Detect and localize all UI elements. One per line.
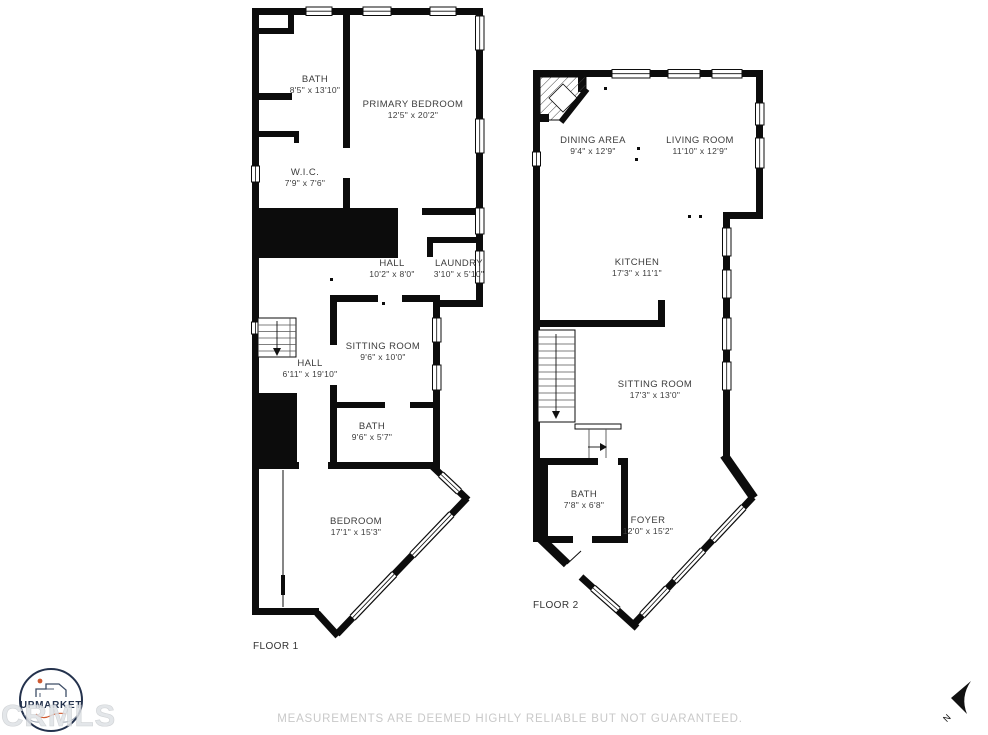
room-label-living-room: LIVING ROOM [666, 135, 734, 146]
floor2-stairs [538, 330, 621, 458]
room-dims-bath-f2: 7'8" x 6'8" [564, 500, 604, 510]
room-label-kitchen: KITCHEN [615, 257, 660, 268]
room-label-bedroom: BEDROOM [330, 516, 382, 527]
room-dims-bath-lower: 9'6" x 5'7" [352, 432, 392, 442]
floorplan-canvas: BATH 8'5" x 13'10" PRIMARY BEDROOM 12'5"… [0, 0, 988, 735]
room-dims-hall-lower: 6'11" x 19'10" [283, 369, 338, 379]
floor2-title: FLOOR 2 [533, 600, 579, 611]
room-label-bath-lower: BATH [359, 421, 385, 432]
foyer-left-diagonal-window [593, 588, 618, 610]
room-label-hall-lower: HALL [297, 358, 322, 369]
room-label-bath-upper: BATH [302, 74, 328, 85]
room-dims-living-room: 11'10" x 12'9" [673, 146, 728, 156]
room-label-dining-area: DINING AREA [560, 135, 626, 146]
logo-heart-icon [38, 679, 43, 684]
room-dims-bedroom: 17'1" x 15'3" [331, 527, 382, 537]
room-label-hall-upper: HALL [379, 258, 404, 269]
room-dims-foyer: 12'0" x 15'2" [623, 526, 674, 536]
room-dims-wic: 7'9" x 7'6" [285, 178, 325, 188]
room-dims-sitting-room-f2: 17'3" x 13'0" [630, 390, 681, 400]
room-dims-bath-upper: 8'5" x 13'10" [290, 85, 341, 95]
disclaimer-text: MEASUREMENTS ARE DEEMED HIGHLY RELIABLE … [277, 713, 743, 725]
room-label-primary-bedroom: PRIMARY BEDROOM [363, 99, 464, 110]
room-label-foyer: FOYER [631, 515, 666, 526]
bedroom-upper-diagonal-window [441, 475, 459, 492]
floor1-labels: BATH 8'5" x 13'10" PRIMARY BEDROOM 12'5"… [253, 74, 484, 652]
room-label-laundry: LAUNDRY [435, 258, 483, 269]
north-arrow [951, 681, 971, 714]
north-label: N [941, 712, 953, 724]
floor2-plan: DINING AREA 9'4" x 12'9" LIVING ROOM 11'… [533, 70, 765, 629]
floor1-stairs [258, 318, 296, 357]
room-dims-kitchen: 17'3" x 11'1" [612, 268, 662, 278]
room-dims-dining-area: 9'4" x 12'9" [570, 146, 616, 156]
room-dims-laundry: 3'10" x 5'10" [434, 269, 485, 279]
room-dims-hall-upper: 10'2" x 8'0" [369, 269, 415, 279]
room-label-sitting-room-f1: SITTING ROOM [346, 341, 420, 352]
room-label-wic: W.I.C. [291, 167, 319, 178]
room-label-sitting-room-f2: SITTING ROOM [618, 379, 692, 390]
crmls-watermark: CRMLS [1, 698, 116, 733]
floorplan-page: BATH 8'5" x 13'10" PRIMARY BEDROOM 12'5"… [0, 0, 988, 735]
room-dims-primary-bedroom: 12'5" x 20'2" [388, 110, 439, 120]
floor1-plan: BATH 8'5" x 13'10" PRIMARY BEDROOM 12'5"… [252, 7, 485, 652]
floor1-title: FLOOR 1 [253, 641, 299, 652]
room-dims-sitting-room-f1: 9'6" x 10'0" [360, 352, 406, 362]
compass-north-icon: N [941, 681, 971, 724]
room-label-bath-f2: BATH [571, 489, 597, 500]
